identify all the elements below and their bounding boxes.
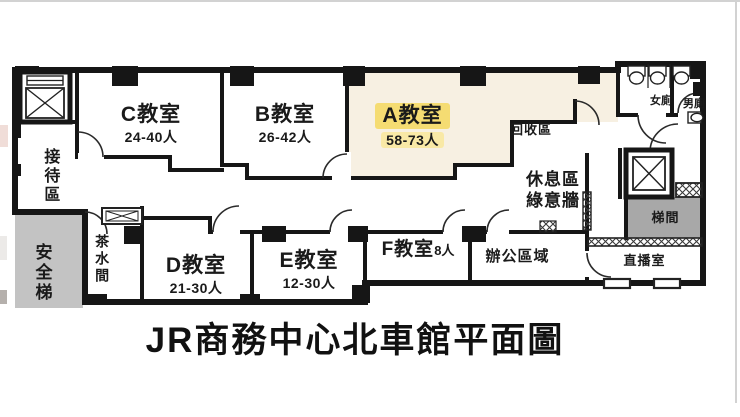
men-toilet-label: 男廁 [678,98,710,111]
classroom-d-name: D教室 [140,254,252,278]
classroom-f-capacity: 8人 [434,243,454,258]
classroom-e-label: E教室 12-30人 [253,249,365,291]
right-frame-line [735,0,737,403]
classroom-c-name: C教室 [88,103,214,127]
classroom-a-capacity: 58-73人 [381,132,444,148]
classroom-b-name: B教室 [225,103,345,127]
floor-plan-title: JR商務中心北車館平面圖 [120,312,590,363]
pantry-label: 茶水間 [94,227,110,291]
classroom-c-label: C教室 24-40人 [88,103,214,145]
elevator-icon [20,72,70,122]
classroom-e-name: E教室 [253,249,365,273]
women-toilet-label: 女廁 [640,95,682,108]
elevator-right-icon [626,150,702,197]
classroom-a-label: A教室 58-73人 [350,103,475,151]
classroom-c-capacity: 24-40人 [88,129,214,145]
lounge-label: 休息區 綠意牆 [512,169,594,212]
edge-artifact-gray2 [0,290,7,304]
floor-plan-page: C教室 24-40人 B教室 26-42人 A教室 58-73人 回收區 休息區… [0,0,740,417]
lounge-hatch-box [540,221,556,232]
classroom-d-capacity: 21-30人 [140,280,252,296]
classroom-b-capacity: 26-42人 [225,129,345,145]
lounge-line1: 休息區 [512,169,594,190]
edge-artifact-pink [0,125,8,147]
recycling-area-label: 回收區 [510,123,570,138]
lounge-line2: 綠意牆 [512,190,594,211]
classroom-b-label: B教室 26-42人 [225,103,345,145]
safety-stair-label: 安全梯 [32,231,52,315]
classroom-e-capacity: 12-30人 [253,275,365,291]
broadcast-top-wall-hatch [588,238,702,246]
broadcast-room-label: 直播室 [597,254,692,269]
classroom-d-label: D教室 21-30人 [140,254,252,296]
edge-artifact-gray1 [0,236,7,260]
office-area-label: 辦公區域 [460,248,575,265]
stairwell-label: 梯間 [626,211,705,226]
classroom-f-label: F教室8人 [366,239,470,261]
pantry-counter-icon [102,208,142,224]
classroom-f-name: F教室 [382,239,435,260]
classroom-a-name: A教室 [375,103,449,129]
reception-label: 接待區 [40,138,58,214]
top-frame-line [0,0,740,2]
